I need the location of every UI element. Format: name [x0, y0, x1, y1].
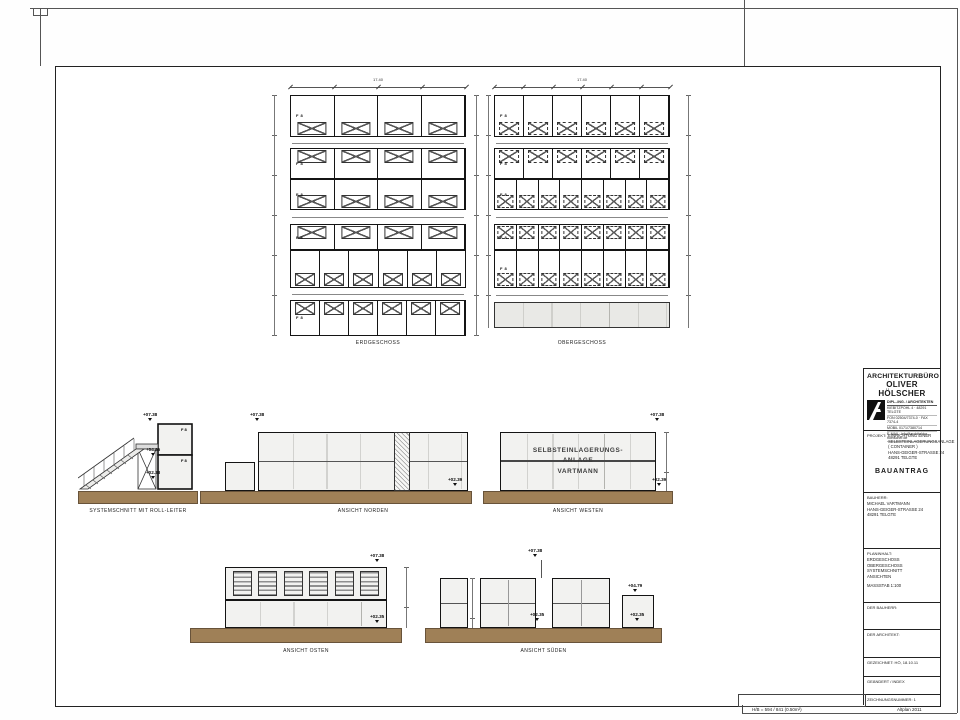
container-cell: [378, 301, 407, 335]
level-value: +02.38: [146, 470, 160, 475]
container-cell: [626, 180, 648, 209]
ground-bar: [78, 491, 198, 504]
caption-divider: [742, 705, 743, 713]
container-row: F 8: [494, 224, 670, 250]
firm-name: OLIVER HÖLSCHER: [867, 380, 937, 398]
container-cell: [604, 251, 626, 287]
container-row: F 8: [494, 148, 670, 179]
container-row: F 8: [494, 179, 670, 210]
title-block-zeichnungsnummer: ZEICHNUNGSNUMMER: 1: [864, 695, 940, 705]
container-cell: [335, 96, 379, 136]
container-door: [541, 226, 556, 239]
bauherr-label: BAUHERR:: [867, 495, 937, 500]
level-value: +07.38: [143, 412, 157, 417]
container-cell: [517, 225, 539, 249]
container-door: [324, 273, 344, 286]
level-marker: +07.38: [650, 412, 664, 421]
container-door: [382, 302, 402, 315]
container-door: [341, 122, 370, 135]
plan-label-erdgeschoss: ERDGESCHOSS: [290, 340, 466, 346]
building-ost-lower: [225, 600, 387, 628]
level-marker: +02.35: [530, 612, 544, 621]
container-row: F 8: [494, 250, 670, 288]
container-door: [411, 302, 431, 315]
dimension-line: [292, 294, 464, 295]
driving-aisle: [494, 137, 670, 148]
louver-window: [284, 571, 303, 596]
level-marker: +02.35: [370, 614, 384, 623]
container-cell: [335, 180, 379, 209]
container-row: F 8: [290, 148, 466, 179]
ground-bar: [190, 628, 402, 643]
der-architekt-label: DER ARCHITEKT:: [867, 632, 937, 637]
container-door: [519, 195, 534, 208]
container-door: [541, 273, 556, 286]
container-door: [298, 122, 327, 135]
ground-bar: [483, 491, 673, 504]
firm-phone: FON 02504/7374-0 · FAX 7374-4: [887, 416, 937, 426]
louver-window: [360, 571, 379, 596]
container-door: [586, 150, 606, 163]
dimension-line: [404, 567, 409, 628]
container-cell: [349, 251, 378, 287]
container-door: [440, 302, 460, 315]
container-cell: [560, 225, 582, 249]
fold-mark: [33, 8, 48, 16]
sheet-size-caption: H/B = 594 / 841 (0.50m²): [752, 707, 802, 712]
projekt-lines: EINRICHTUNG EINERSELBSTEINLAGERUNGSANLAG…: [888, 433, 954, 461]
level-value: +02.35: [630, 612, 644, 617]
title-block: ARCHITEKTURBÜRO OLIVER HÖLSCHER DIPL.-IN…: [863, 368, 940, 705]
container-door: [498, 273, 513, 286]
dimension-line: [486, 95, 491, 328]
dimension-tick: [639, 85, 644, 90]
systemschnitt-drawing: F 8 F 8: [78, 418, 198, 492]
title-block-der-bauherr: DER BAUHERR:: [864, 603, 940, 630]
container-door: [385, 150, 414, 163]
container-cell: [335, 149, 379, 178]
zeichnungsnummer: ZEICHNUNGSNUMMER: 1: [867, 697, 937, 702]
container-door: [295, 302, 315, 315]
louver-window: [335, 571, 354, 596]
container-row: [290, 250, 466, 288]
title-block-gezeichnet: GEZEICHNET: HÖ, 18.10.11: [864, 658, 940, 677]
projekt-label: PROJEKT:: [867, 433, 886, 461]
container-cell: [582, 149, 611, 178]
container-door: [650, 195, 665, 208]
massstab: MASSSTAB 1:100: [867, 583, 937, 588]
container-cell: [408, 251, 437, 287]
building-nord: [258, 432, 468, 491]
sign-line: SELBSTEINLAGERUNGS-: [533, 446, 623, 457]
container-door: [644, 150, 664, 163]
container-door: [585, 195, 600, 208]
container-cell: [582, 180, 604, 209]
ground-bar: [425, 628, 662, 643]
gezeichnet: GEZEICHNET: HÖ, 18.10.11: [867, 660, 937, 665]
elevation-label-schnitt: SYSTEMSCHNITT MIT ROLL-LEITER: [70, 508, 206, 514]
container-door: [528, 150, 548, 163]
container-row: F 8: [290, 224, 466, 250]
elevation-label-ost: ANSICHT OSTEN: [225, 648, 387, 654]
small-container: [225, 462, 255, 491]
container-row: F 8: [290, 179, 466, 210]
fold-mark: [40, 8, 41, 66]
container-cell: [436, 301, 465, 335]
firm-address: KIEBITZPOHL 4 · 48291 TELGTE: [887, 406, 937, 416]
container-cell: [560, 251, 582, 287]
level-value: +04.35: [146, 447, 160, 452]
marker-leader: [541, 560, 542, 578]
container-door: [385, 195, 414, 208]
container-cell: [378, 149, 422, 178]
elevation-label-sued: ANSICHT SÜDEN: [425, 648, 662, 654]
title-block-planinhalt: PLANINHALT: ERDGESCHOSSOBERGESCHOSSSYSTE…: [864, 549, 940, 603]
container-door: [628, 273, 643, 286]
container-door: [585, 226, 600, 239]
container-tag: F 8: [500, 235, 507, 240]
dimension-line: [292, 143, 464, 144]
level-marker: +02.38: [146, 470, 160, 479]
container-cell: [422, 149, 466, 178]
container-door: [557, 150, 577, 163]
level-marker: +07.38: [250, 412, 264, 421]
container-door: [563, 273, 578, 286]
level-value: +02.39: [448, 477, 462, 482]
title-block-projekt: PROJEKT: EINRICHTUNG EINERSELBSTEINLAGER…: [864, 431, 940, 493]
container-cell: [582, 96, 611, 136]
elevation-label-nord: ANSICHT NORDEN: [258, 508, 468, 514]
panel-joint: [581, 580, 582, 626]
container-cell: [647, 225, 669, 249]
container-cell: [539, 251, 561, 287]
container-cell: [539, 225, 561, 249]
container-cell: [582, 251, 604, 287]
der-bauherr-label: DER BAUHERR:: [867, 605, 937, 610]
level-marker: +02.39: [448, 477, 462, 486]
dimension-line: [494, 84, 670, 90]
title-block-geaendert: GEÄNDERT / INDEX: [864, 677, 940, 695]
container-tag: F 8: [181, 427, 188, 432]
container-tag: F 8: [296, 161, 303, 166]
container-door: [519, 273, 534, 286]
louver-window: [233, 571, 252, 596]
container-cell: [422, 96, 466, 136]
dimension-line: [496, 143, 668, 144]
plan-sheet: F 8F 8F 8F 8F 8 F 8F 8F 8F 8F 8 17.40 17…: [0, 0, 960, 720]
container-door: [385, 122, 414, 135]
container-door: [563, 195, 578, 208]
container-cell: [626, 225, 648, 249]
container-door: [519, 226, 534, 239]
bauherr-lines: MICHAEL VARTMANNHANS-GEIGER-STRASSE 2448…: [867, 501, 937, 518]
container-cell: [320, 251, 349, 287]
level-value: +07.38: [370, 553, 384, 558]
dimension-tick: [376, 85, 381, 90]
elevation-label-west: ANSICHT WESTEN: [500, 508, 656, 514]
container-cell: [517, 180, 539, 209]
container-row: F 8: [494, 95, 670, 137]
container-cell: [524, 149, 553, 178]
container-door: [650, 226, 665, 239]
driving-aisle: [494, 288, 670, 302]
dimension-tick: [580, 85, 585, 90]
dimension-tick: [551, 85, 556, 90]
container-door: [428, 122, 457, 135]
container-tag: F 8: [296, 315, 303, 320]
container-cell: [539, 180, 561, 209]
container-tag: F 8: [500, 266, 507, 271]
container-cell: [647, 251, 669, 287]
driving-aisle: [494, 210, 670, 224]
container-tag: F 8: [296, 192, 303, 197]
container-door: [628, 195, 643, 208]
level-marker: +04.35: [146, 447, 160, 456]
container-door: [341, 150, 370, 163]
container-cell: [560, 180, 582, 209]
container-cell: [517, 251, 539, 287]
container-door: [341, 195, 370, 208]
dimension-line: [496, 295, 668, 296]
container-door: [441, 273, 461, 286]
dimension-tick: [609, 85, 614, 90]
container-tag: F 8: [181, 458, 188, 463]
dimension-line: [292, 217, 464, 218]
container-door: [412, 273, 432, 286]
container-cell: [626, 251, 648, 287]
container-door: [499, 122, 519, 135]
page-edge: [957, 8, 958, 713]
container-cell: [647, 180, 669, 209]
floor-plan-obergeschoss: F 8F 8F 8F 8F 8: [494, 95, 670, 328]
container-door: [353, 273, 373, 286]
fold-mark: [744, 0, 745, 66]
container-cell: [640, 149, 669, 178]
title-block-bauherr: BAUHERR: MICHAEL VARTMANNHANS-GEIGER-STR…: [864, 493, 940, 549]
driving-aisle: [290, 288, 466, 300]
dimension-line: [496, 217, 668, 218]
container-door: [644, 122, 664, 135]
level-marker: +04.79: [628, 583, 642, 592]
container-tag: F 8: [500, 113, 507, 118]
container-cell: [524, 96, 553, 136]
driving-aisle: [290, 137, 466, 148]
container-door: [606, 273, 621, 286]
dimension-tick: [332, 85, 337, 90]
container-door: [528, 122, 548, 135]
level-marker: +07.38: [143, 412, 157, 421]
container-cell: [335, 225, 379, 249]
container-cell: [320, 301, 349, 335]
container-cell: [437, 251, 465, 287]
louver-window: [309, 571, 328, 596]
container-door: [650, 273, 665, 286]
louver-row: [226, 568, 386, 599]
container-cell: [640, 96, 669, 136]
title-block-firm: ARCHITEKTURBÜRO OLIVER HÖLSCHER DIPL.-IN…: [864, 369, 940, 431]
level-value: +07.38: [250, 412, 264, 417]
stamp-box: [738, 694, 866, 707]
container-cell: [422, 180, 466, 209]
text-line: 48291 TELGTE: [888, 455, 954, 461]
bauantrag-title: BAUANTRAG: [867, 468, 937, 475]
firm-name: ARCHITEKTURBÜRO: [867, 373, 937, 380]
dimension-line: [470, 578, 475, 628]
geaendert: GEÄNDERT / INDEX: [867, 679, 937, 684]
container-cell: [378, 96, 422, 136]
container-door: [428, 150, 457, 163]
container-cell: [291, 251, 320, 287]
container-door: [586, 122, 606, 135]
sign-line: VARTMANN: [558, 467, 599, 478]
container-stack: [552, 578, 610, 628]
stair-tower: [394, 432, 410, 491]
planinhalt-lines: ERDGESCHOSSOBERGESCHOSSSYSTEMSCHNITTANSI…: [867, 557, 937, 579]
dimension-line: [686, 95, 691, 328]
container-door: [324, 302, 344, 315]
container-cell: [553, 149, 582, 178]
text-line: 48291 TELGTE: [867, 512, 937, 518]
dimension-line: [474, 95, 479, 336]
level-marker: +02.39: [652, 477, 666, 486]
level-marker: +02.35: [630, 612, 644, 621]
container-row: F 8: [290, 95, 466, 137]
container-tag: F 8: [296, 235, 303, 240]
panel-joint: [508, 580, 509, 626]
page-edge: [742, 713, 957, 714]
text-line: ANSICHTEN: [867, 574, 937, 580]
floor-line: [259, 461, 467, 462]
container-cell: [604, 225, 626, 249]
container-door: [428, 226, 457, 239]
plan-label-obergeschoss: OBERGESCHOSS: [494, 340, 670, 346]
level-value: +07.38: [650, 412, 664, 417]
panel-joints: [227, 602, 385, 626]
level-marker: +07.38: [370, 553, 384, 562]
container-door: [615, 150, 635, 163]
container-door: [383, 273, 403, 286]
container-cell: [553, 96, 582, 136]
level-value: +04.79: [628, 583, 642, 588]
container-tag: F 8: [296, 113, 303, 118]
firm-logo-icon: [867, 400, 885, 420]
empty-roof-strip: [494, 302, 670, 328]
container-cell: [611, 96, 640, 136]
building-sign: SELBSTEINLAGERUNGS- ANLAGE VARTMANN: [501, 433, 655, 490]
container-door: [295, 273, 315, 286]
plan-age-caption: Altplan 2011: [897, 707, 922, 712]
floor-plan-erdgeschoss: F 8F 8F 8F 8F 8: [290, 95, 466, 336]
dimension-label: 17.40: [290, 77, 466, 82]
dimension-line: [290, 84, 466, 90]
dimension-tick: [521, 85, 526, 90]
container-cell: [378, 225, 422, 249]
container-cell: [604, 180, 626, 209]
container-door: [385, 226, 414, 239]
container-tag: F 8: [500, 161, 507, 166]
container-door: [585, 273, 600, 286]
container-door: [353, 302, 373, 315]
building-west: SELBSTEINLAGERUNGS- ANLAGE VARTMANN: [500, 432, 656, 491]
planinhalt-label: PLANINHALT:: [867, 551, 937, 556]
title-block-der-architekt: DER ARCHITEKT:: [864, 630, 940, 658]
container-door: [428, 195, 457, 208]
ground-bar: [200, 491, 472, 504]
container-cell: [582, 225, 604, 249]
container-door: [563, 226, 578, 239]
floor-line: [441, 603, 467, 604]
container-stack: [480, 578, 536, 628]
level-value: +02.39: [652, 477, 666, 482]
dimension-line: [272, 95, 277, 336]
container-cell: [422, 225, 466, 249]
sign-line: ANLAGE: [563, 456, 594, 467]
fold-mark: [30, 8, 958, 9]
container-tag: F 8: [500, 192, 507, 197]
container-door: [628, 226, 643, 239]
container-door: [606, 226, 621, 239]
level-value: +02.35: [370, 614, 384, 619]
dimension-label: 17.40: [494, 77, 670, 82]
container-cell: [349, 301, 378, 335]
level-value: +07.38: [528, 548, 542, 553]
level-marker: +07.38: [528, 548, 542, 557]
level-value: +02.35: [530, 612, 544, 617]
container-door: [341, 226, 370, 239]
driving-aisle: [290, 210, 466, 224]
container-door: [615, 122, 635, 135]
building-ost-upper: [225, 567, 387, 600]
container-stack: [440, 578, 468, 628]
dimension-tick: [420, 85, 425, 90]
container-row: F 8: [290, 300, 466, 336]
container-door: [541, 195, 556, 208]
container-door: [606, 195, 621, 208]
container-cell: [379, 251, 408, 287]
container-cell: [378, 180, 422, 209]
container-door: [557, 122, 577, 135]
louver-window: [258, 571, 277, 596]
container-cell: [611, 149, 640, 178]
container-cell: [407, 301, 436, 335]
